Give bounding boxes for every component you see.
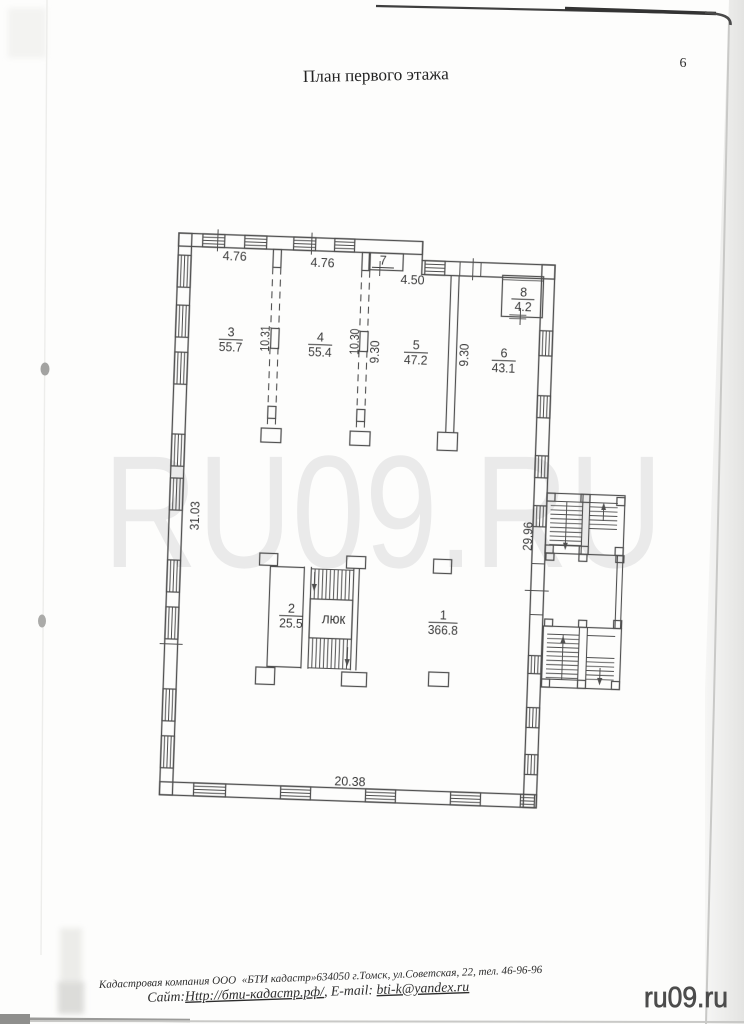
svg-text:6: 6: [680, 56, 687, 71]
svg-text:20.38: 20.38: [334, 774, 365, 789]
svg-text:5: 5: [412, 338, 419, 352]
svg-text:10.31: 10.31: [258, 325, 273, 351]
svg-text:7: 7: [379, 254, 386, 268]
svg-text:29.96: 29.96: [521, 522, 536, 551]
svg-text:6: 6: [500, 346, 507, 360]
svg-text:8: 8: [520, 285, 527, 299]
svg-text:ru09.ru: ru09.ru: [644, 982, 728, 1014]
svg-text:4.50: 4.50: [400, 273, 424, 288]
svg-text:31.03: 31.03: [188, 501, 203, 530]
svg-text:25.5: 25.5: [279, 616, 303, 631]
svg-text:4.76: 4.76: [310, 256, 334, 271]
svg-text:3: 3: [227, 325, 234, 339]
svg-text:9.30: 9.30: [368, 340, 383, 363]
svg-text:4: 4: [317, 330, 324, 344]
svg-text:47.2: 47.2: [404, 353, 428, 368]
svg-text:2: 2: [288, 602, 295, 616]
svg-text:55.7: 55.7: [219, 340, 243, 355]
svg-text:План первого этажа: План первого этажа: [303, 64, 450, 86]
svg-text:43.1: 43.1: [491, 361, 515, 376]
svg-text:4.2: 4.2: [514, 300, 531, 315]
svg-text:1: 1: [440, 608, 447, 622]
svg-text:366.8: 366.8: [428, 623, 458, 638]
svg-text:9.30: 9.30: [457, 343, 472, 366]
svg-text:RU09.RU: RU09.RU: [103, 422, 663, 601]
svg-text:55.4: 55.4: [308, 345, 332, 360]
svg-text:10.30: 10.30: [347, 328, 362, 354]
svg-text:люк: люк: [322, 610, 346, 628]
svg-text:4.76: 4.76: [222, 249, 246, 264]
